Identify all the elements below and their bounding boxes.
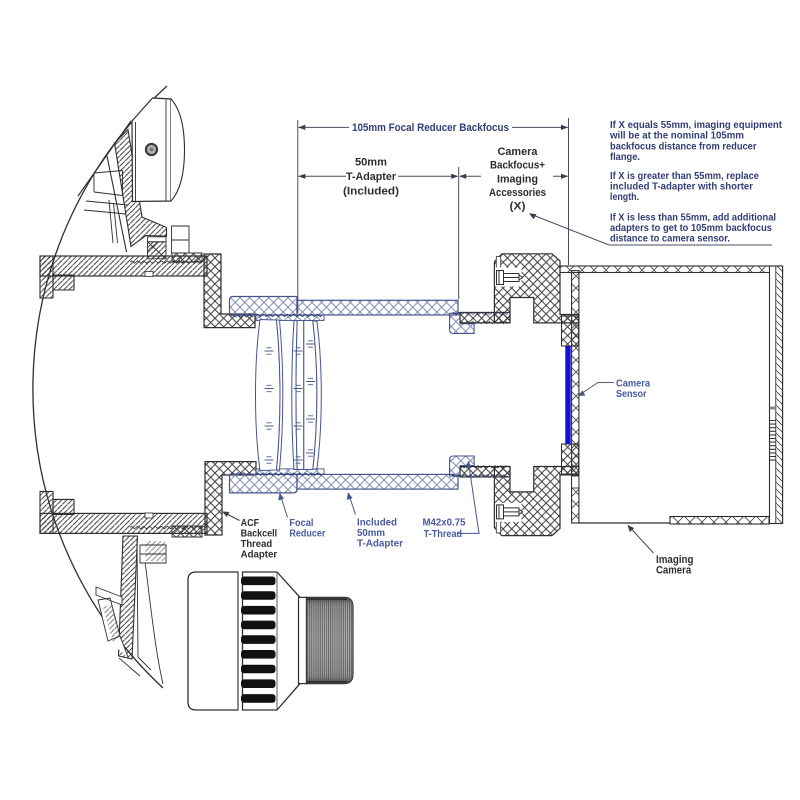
svg-text:Camera: Camera (616, 378, 650, 389)
svg-text:backfocus distance from reduce: backfocus distance from reducer (610, 141, 757, 152)
svg-text:If X equals 55mm, imaging equi: If X equals 55mm, imaging equipment (610, 120, 783, 131)
svg-text:adapters to get to 105mm backf: adapters to get to 105mm backfocus (610, 223, 772, 234)
svg-text:Sensor: Sensor (616, 389, 647, 400)
svg-text:Reducer: Reducer (289, 528, 325, 539)
svg-text:Camera: Camera (656, 565, 691, 577)
svg-text:(Included): (Included) (343, 186, 399, 198)
svg-text:will be at the nominal 105mm: will be at the nominal 105mm (609, 131, 744, 142)
svg-text:Backcell: Backcell (241, 528, 278, 539)
svg-text:length.: length. (610, 192, 639, 203)
svg-text:Focal: Focal (289, 518, 313, 529)
svg-text:50mm: 50mm (357, 528, 385, 539)
svg-text:T-Thread: T-Thread (424, 529, 463, 540)
svg-text:ACF: ACF (241, 518, 260, 529)
svg-text:flange.: flange. (610, 152, 640, 163)
svg-text:(X): (X) (510, 201, 526, 213)
svg-text:M42x0.75: M42x0.75 (423, 517, 466, 528)
svg-text:Backfocus+: Backfocus+ (490, 160, 545, 172)
svg-text:105mm Focal Reducer Backfocus: 105mm Focal Reducer Backfocus (352, 122, 509, 134)
svg-text:Thread: Thread (241, 539, 273, 550)
svg-text:If X is greater than 55mm, rep: If X is greater than 55mm, replace (610, 171, 759, 182)
svg-text:Camera: Camera (498, 146, 539, 158)
svg-text:Imaging: Imaging (497, 174, 538, 186)
svg-text:T-Adapter: T-Adapter (357, 538, 403, 549)
svg-text:Included: Included (357, 517, 397, 528)
svg-text:If X is less than 55mm, add ad: If X is less than 55mm, add additional (610, 212, 776, 223)
svg-text:included T-adapter with shorte: included T-adapter with shorter (610, 182, 753, 193)
svg-text:50mm: 50mm (355, 157, 387, 169)
svg-text:distance to camera sensor.: distance to camera sensor. (610, 234, 730, 245)
svg-text:Adapter: Adapter (241, 549, 278, 560)
svg-text:Accessories: Accessories (489, 187, 546, 199)
svg-text:T-Adapter: T-Adapter (346, 171, 397, 183)
